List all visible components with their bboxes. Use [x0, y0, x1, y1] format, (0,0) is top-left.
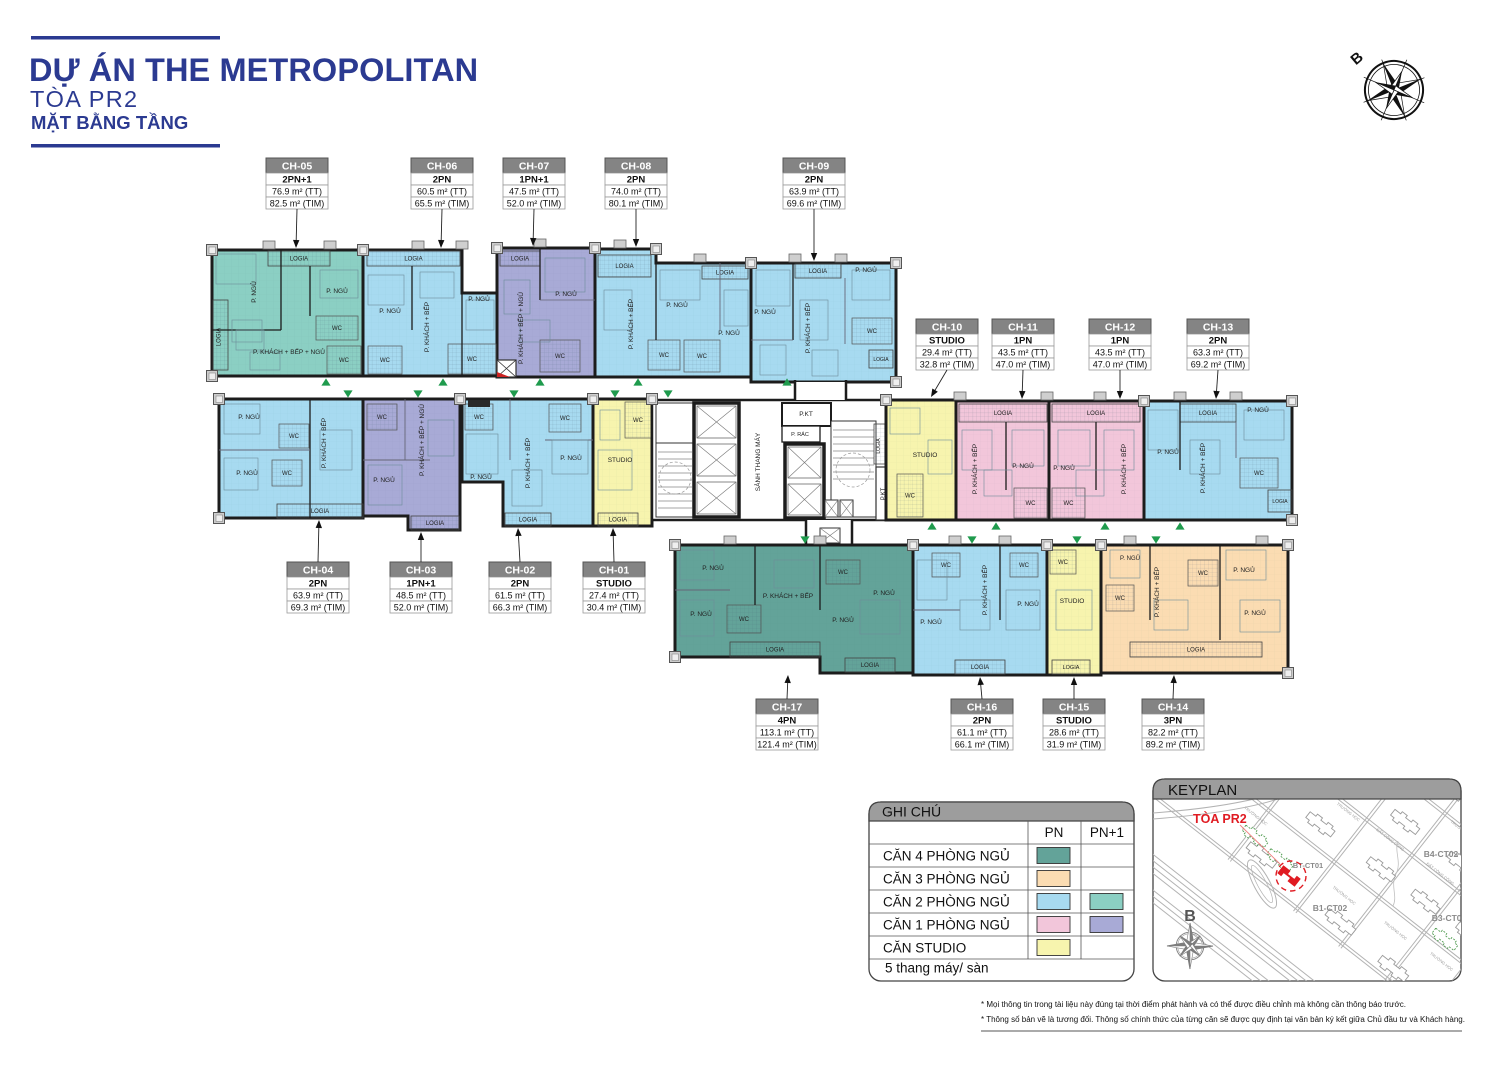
svg-text:P. NGỦ: P. NGỦ	[666, 300, 688, 309]
svg-text:P. NGỦ: P. NGỦ	[754, 307, 776, 316]
svg-text:LOGIA: LOGIA	[809, 269, 827, 275]
svg-text:WC: WC	[1254, 471, 1265, 477]
svg-text:32.8 m² (TIM): 32.8 m² (TIM)	[920, 360, 975, 370]
svg-text:WC: WC	[1115, 596, 1126, 602]
svg-text:* Mọi thông tin trong tài liệu: * Mọi thông tin trong tài liệu này đúng …	[981, 1000, 1406, 1009]
svg-text:30.4 m² (TIM): 30.4 m² (TIM)	[587, 603, 642, 613]
svg-text:CH-08: CH-08	[621, 161, 652, 173]
svg-text:P. NGỦ: P. NGỦ	[1244, 608, 1266, 617]
svg-text:113.1 m² (TT): 113.1 m² (TT)	[760, 728, 814, 738]
svg-text:4PN: 4PN	[778, 716, 797, 727]
svg-text:66.3 m² (TIM): 66.3 m² (TIM)	[493, 603, 548, 613]
svg-text:WC: WC	[380, 358, 391, 364]
svg-text:P. NGỦ: P. NGỦ	[560, 453, 582, 462]
svg-text:2PN: 2PN	[805, 175, 824, 186]
svg-text:1PN: 1PN	[1014, 336, 1033, 347]
svg-text:LOGIA: LOGIA	[426, 521, 444, 527]
svg-text:STUDIO: STUDIO	[1060, 598, 1085, 605]
svg-text:P. NGỦ: P. NGỦ	[920, 617, 942, 626]
svg-text:LOGIA: LOGIA	[876, 438, 882, 454]
svg-text:47.0 m² (TIM): 47.0 m² (TIM)	[1093, 360, 1148, 370]
svg-text:P. NGỦ: P. NGỦ	[236, 468, 258, 477]
svg-text:65.5 m² (TIM): 65.5 m² (TIM)	[415, 199, 470, 209]
svg-text:89.2 m² (TIM): 89.2 m² (TIM)	[1146, 740, 1201, 750]
svg-text:P. NGỦ: P. NGỦ	[873, 588, 895, 597]
svg-text:STUDIO: STUDIO	[929, 336, 965, 347]
svg-text:P. NGỦ: P. NGỦ	[832, 615, 854, 624]
svg-text:63.9 m² (TT): 63.9 m² (TT)	[293, 591, 343, 601]
svg-text:LOGIA: LOGIA	[1187, 648, 1205, 654]
svg-text:CH-03: CH-03	[406, 565, 437, 577]
svg-text:CH-11: CH-11	[1008, 322, 1038, 334]
svg-text:CH-01: CH-01	[599, 565, 630, 577]
svg-text:61.5 m² (TT): 61.5 m² (TT)	[495, 591, 545, 601]
svg-text:5 thang máy/ sàn: 5 thang máy/ sàn	[885, 961, 989, 976]
svg-text:CH-05: CH-05	[282, 161, 313, 173]
svg-text:P. NGỦ: P. NGỦ	[555, 289, 577, 298]
svg-text:CH-17: CH-17	[772, 702, 803, 714]
svg-text:P. NGỦ: P. NGỦ	[1157, 447, 1179, 456]
svg-text:CH-10: CH-10	[932, 322, 963, 334]
svg-text:80.1 m² (TIM): 80.1 m² (TIM)	[609, 199, 664, 209]
svg-text:CĂN 1 PHÒNG NGỦ: CĂN 1 PHÒNG NGỦ	[883, 918, 1010, 933]
svg-text:P. NGỦ: P. NGỦ	[468, 294, 490, 303]
svg-text:WC: WC	[1058, 560, 1069, 566]
svg-text:61.1 m² (TT): 61.1 m² (TT)	[957, 728, 1007, 738]
svg-text:P. NGỦ: P. NGỦ	[1247, 405, 1269, 414]
svg-text:WC: WC	[377, 415, 388, 421]
svg-text:WC: WC	[560, 416, 571, 422]
svg-text:69.2 m² (TIM): 69.2 m² (TIM)	[1191, 360, 1246, 370]
svg-text:LOGIA: LOGIA	[1199, 411, 1217, 417]
svg-text:TÒA PR2: TÒA PR2	[1193, 811, 1247, 826]
svg-text:WC: WC	[905, 494, 916, 500]
svg-text:P. NGỦ: P. NGỦ	[238, 412, 260, 421]
svg-text:P. NGỦ: P. NGỦ	[702, 563, 724, 572]
svg-text:P. RÁC: P. RÁC	[791, 431, 809, 438]
svg-text:CĂN 4 PHÒNG NGỦ: CĂN 4 PHÒNG NGỦ	[883, 849, 1010, 864]
svg-text:P. NGỦ: P. NGỦ	[326, 286, 348, 295]
svg-text:2PN: 2PN	[973, 716, 992, 727]
svg-text:WC: WC	[339, 358, 350, 364]
svg-text:31.9 m² (TIM): 31.9 m² (TIM)	[1047, 740, 1102, 750]
svg-text:2PN: 2PN	[511, 579, 530, 590]
svg-text:P. NGỦ: P. NGỦ	[1233, 565, 1255, 574]
svg-text:CH-13: CH-13	[1203, 322, 1234, 334]
svg-text:P. NGỦ: P. NGỦ	[855, 265, 877, 274]
svg-text:CĂN 3 PHÒNG NGỦ: CĂN 3 PHÒNG NGỦ	[883, 872, 1010, 887]
svg-text:LOGIA: LOGIA	[511, 257, 529, 263]
svg-text:76.9 m² (TT): 76.9 m² (TT)	[272, 187, 322, 197]
svg-text:LOGIA: LOGIA	[290, 257, 308, 263]
svg-text:WC: WC	[838, 570, 849, 576]
svg-text:LOGIA: LOGIA	[311, 509, 329, 515]
svg-text:P. NGỦ: P. NGỦ	[1017, 599, 1039, 608]
svg-text:LOGIA: LOGIA	[971, 665, 989, 671]
svg-text:2PN: 2PN	[627, 175, 646, 186]
svg-text:P. NGỦ: P. NGỦ	[379, 306, 401, 315]
svg-text:P. NGỦ: P. NGỦ	[249, 281, 258, 303]
svg-text:27.4 m² (TT): 27.4 m² (TT)	[589, 591, 639, 601]
svg-text:2PN: 2PN	[309, 579, 328, 590]
svg-text:82.5 m² (TIM): 82.5 m² (TIM)	[270, 199, 325, 209]
svg-text:STUDIO: STUDIO	[1056, 716, 1092, 727]
svg-text:WC: WC	[659, 353, 670, 359]
svg-text:WC: WC	[1064, 501, 1075, 507]
svg-text:WC: WC	[697, 354, 708, 360]
svg-text:P. NGỦ: P. NGỦ	[1053, 463, 1075, 472]
svg-text:2PN+1: 2PN+1	[282, 175, 312, 186]
svg-text:43.5 m² (TT): 43.5 m² (TT)	[1095, 348, 1145, 358]
svg-text:60.5 m² (TT): 60.5 m² (TT)	[417, 187, 467, 197]
svg-text:WC: WC	[941, 563, 952, 569]
svg-text:47.0 m² (TIM): 47.0 m² (TIM)	[996, 360, 1051, 370]
svg-text:P. NGỦ: P. NGỦ	[690, 609, 712, 618]
svg-text:TÒA PR2: TÒA PR2	[30, 86, 138, 112]
svg-text:WC: WC	[1026, 501, 1037, 507]
svg-text:PN: PN	[1045, 825, 1064, 840]
svg-text:WC: WC	[282, 471, 293, 477]
svg-text:48.5 m² (TT): 48.5 m² (TT)	[396, 591, 446, 601]
svg-text:CH-14: CH-14	[1158, 702, 1189, 714]
svg-text:1PN+1: 1PN+1	[519, 175, 549, 186]
svg-text:47.5 m² (TT): 47.5 m² (TT)	[509, 187, 559, 197]
svg-text:52.0 m² (TIM): 52.0 m² (TIM)	[394, 603, 449, 613]
svg-text:LOGIA: LOGIA	[861, 663, 879, 669]
svg-text:P. NGỦ: P. NGỦ	[1012, 461, 1034, 470]
svg-text:52.0 m² (TIM): 52.0 m² (TIM)	[507, 199, 562, 209]
svg-text:WC: WC	[867, 329, 878, 335]
svg-text:* Thông số bản vẽ là tương đối: * Thông số bản vẽ là tương đối. Thông số…	[981, 1015, 1465, 1024]
svg-text:LOGIA: LOGIA	[766, 648, 784, 654]
svg-text:CH-02: CH-02	[505, 565, 536, 577]
svg-text:66.1 m² (TIM): 66.1 m² (TIM)	[955, 740, 1010, 750]
svg-text:P. NGỦ: P. NGỦ	[470, 472, 492, 481]
svg-text:P. NGỦ: P. NGỦ	[718, 328, 740, 337]
svg-text:LOGIA: LOGIA	[519, 518, 537, 524]
svg-text:1PN: 1PN	[1111, 336, 1130, 347]
svg-text:WC: WC	[633, 418, 644, 424]
svg-text:STUDIO: STUDIO	[596, 579, 632, 590]
svg-text:3PN: 3PN	[1164, 716, 1183, 727]
svg-text:MẶT BẰNG TẦNG: MẶT BẰNG TẦNG	[31, 112, 188, 133]
svg-text:CH-07: CH-07	[519, 161, 550, 173]
svg-text:P. NGỦ: P. NGỦ	[373, 475, 395, 484]
svg-text:GHI CHÚ: GHI CHÚ	[882, 804, 941, 820]
svg-text:CH-06: CH-06	[427, 161, 458, 173]
svg-text:B4-CT02: B4-CT02	[1424, 849, 1459, 859]
svg-text:121.4 m² (TIM): 121.4 m² (TIM)	[757, 740, 817, 750]
svg-text:CH-16: CH-16	[967, 702, 998, 714]
svg-text:STUDIO: STUDIO	[913, 452, 938, 459]
svg-text:74.0 m² (TT): 74.0 m² (TT)	[611, 187, 661, 197]
svg-text:69.3 m² (TIM): 69.3 m² (TIM)	[291, 603, 346, 613]
svg-text:WC: WC	[467, 357, 478, 363]
svg-text:43.5 m² (TT): 43.5 m² (TT)	[998, 348, 1048, 358]
svg-text:LOGIA: LOGIA	[873, 357, 889, 363]
svg-text:29.4 m² (TT): 29.4 m² (TT)	[922, 348, 972, 358]
svg-text:LOGIA: LOGIA	[404, 257, 422, 263]
svg-text:63.3 m² (TT): 63.3 m² (TT)	[1193, 348, 1243, 358]
svg-text:69.6 m² (TIM): 69.6 m² (TIM)	[787, 199, 842, 209]
svg-text:LOGIA: LOGIA	[1272, 499, 1288, 505]
svg-text:CH-12: CH-12	[1105, 322, 1136, 334]
svg-text:LOGIA: LOGIA	[716, 271, 734, 277]
svg-text:P. NGỦ: P. NGỦ	[1120, 555, 1140, 562]
svg-text:LOGIA: LOGIA	[1063, 665, 1080, 671]
svg-text:WC: WC	[555, 354, 566, 360]
svg-text:CH-15: CH-15	[1059, 702, 1090, 714]
svg-text:CH-04: CH-04	[303, 565, 334, 577]
svg-text:P.KT: P.KT	[799, 411, 813, 418]
svg-text:B: B	[1184, 908, 1196, 925]
svg-text:SẢNH THANG MÁY: SẢNH THANG MÁY	[753, 432, 762, 491]
svg-text:STUDIO: STUDIO	[608, 457, 633, 464]
svg-text:82.2 m² (TT): 82.2 m² (TT)	[1148, 728, 1198, 738]
svg-text:LOGIA: LOGIA	[609, 518, 627, 524]
svg-text:28.6 m² (TT): 28.6 m² (TT)	[1049, 728, 1099, 738]
svg-text:CĂN 2 PHÒNG NGỦ: CĂN 2 PHÒNG NGỦ	[883, 895, 1010, 910]
svg-text:LOGIA: LOGIA	[994, 411, 1012, 417]
svg-text:KEYPLAN: KEYPLAN	[1168, 782, 1237, 799]
svg-text:WC: WC	[289, 434, 300, 440]
svg-text:DỰ ÁN THE METROPOLITAN: DỰ ÁN THE METROPOLITAN	[29, 51, 478, 88]
svg-text:2PN: 2PN	[1209, 336, 1228, 347]
svg-text:WC: WC	[1019, 563, 1030, 569]
svg-text:WC: WC	[474, 415, 485, 421]
svg-text:2PN: 2PN	[433, 175, 452, 186]
svg-text:WC: WC	[739, 617, 750, 623]
svg-text:LOGIA: LOGIA	[615, 264, 633, 270]
svg-text:PN+1: PN+1	[1090, 825, 1124, 840]
svg-text:63.9 m² (TT): 63.9 m² (TT)	[789, 187, 839, 197]
svg-text:LOGIA: LOGIA	[1087, 411, 1105, 417]
svg-text:B1-CT02: B1-CT02	[1313, 903, 1348, 913]
svg-text:1PN+1: 1PN+1	[406, 579, 436, 590]
svg-text:WC: WC	[332, 326, 343, 332]
svg-text:CĂN STUDIO: CĂN STUDIO	[883, 941, 966, 956]
svg-text:WC: WC	[1198, 571, 1209, 577]
svg-text:CH-09: CH-09	[799, 161, 830, 173]
